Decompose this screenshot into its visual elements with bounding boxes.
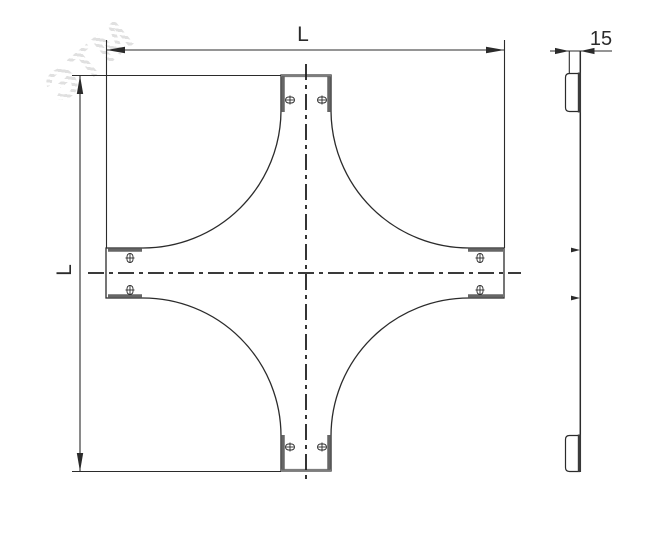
dim-arrowhead (486, 47, 505, 53)
front-view (88, 64, 521, 481)
mounting-slot (286, 96, 295, 105)
thickness-dimension-label: 15 (590, 28, 612, 50)
dim-arrowhead (77, 76, 83, 95)
flange-tick (561, 296, 580, 301)
mounting-slot (318, 443, 327, 452)
thickness-dimension: 15 (550, 28, 612, 54)
dim-arrowhead (555, 48, 569, 54)
mounting-slot (476, 286, 485, 295)
drawing-canvas: ЭТМ (0, 0, 654, 546)
mounting-slot (126, 254, 135, 263)
technical-drawing: L L (0, 0, 654, 546)
mounting-slot (286, 443, 295, 452)
width-dimension-label: L (297, 23, 309, 46)
mounting-slot (476, 254, 485, 263)
side-view (561, 51, 580, 472)
mounting-slot (126, 286, 135, 295)
dim-arrowhead (77, 453, 83, 472)
height-dimension-label: L (53, 264, 76, 276)
dim-arrowhead (107, 47, 126, 53)
mounting-slot (318, 96, 327, 105)
flange-tick (561, 248, 580, 253)
